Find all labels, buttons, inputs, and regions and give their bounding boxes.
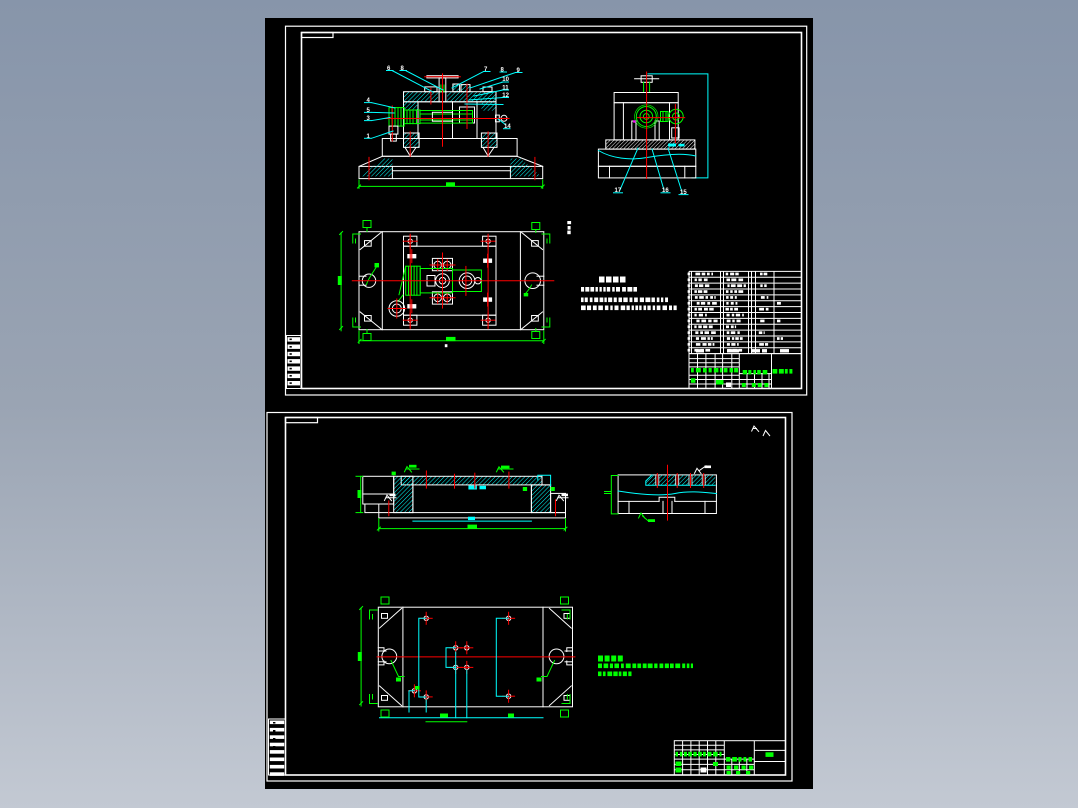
svg-text:14: 14 [504,124,511,130]
svg-text:15: 15 [680,190,687,196]
svg-text:11: 11 [502,86,509,92]
svg-text:16: 16 [662,188,669,194]
svg-text:17: 17 [615,188,622,194]
svg-text:12: 12 [502,93,509,99]
svg-text:10: 10 [502,77,509,83]
